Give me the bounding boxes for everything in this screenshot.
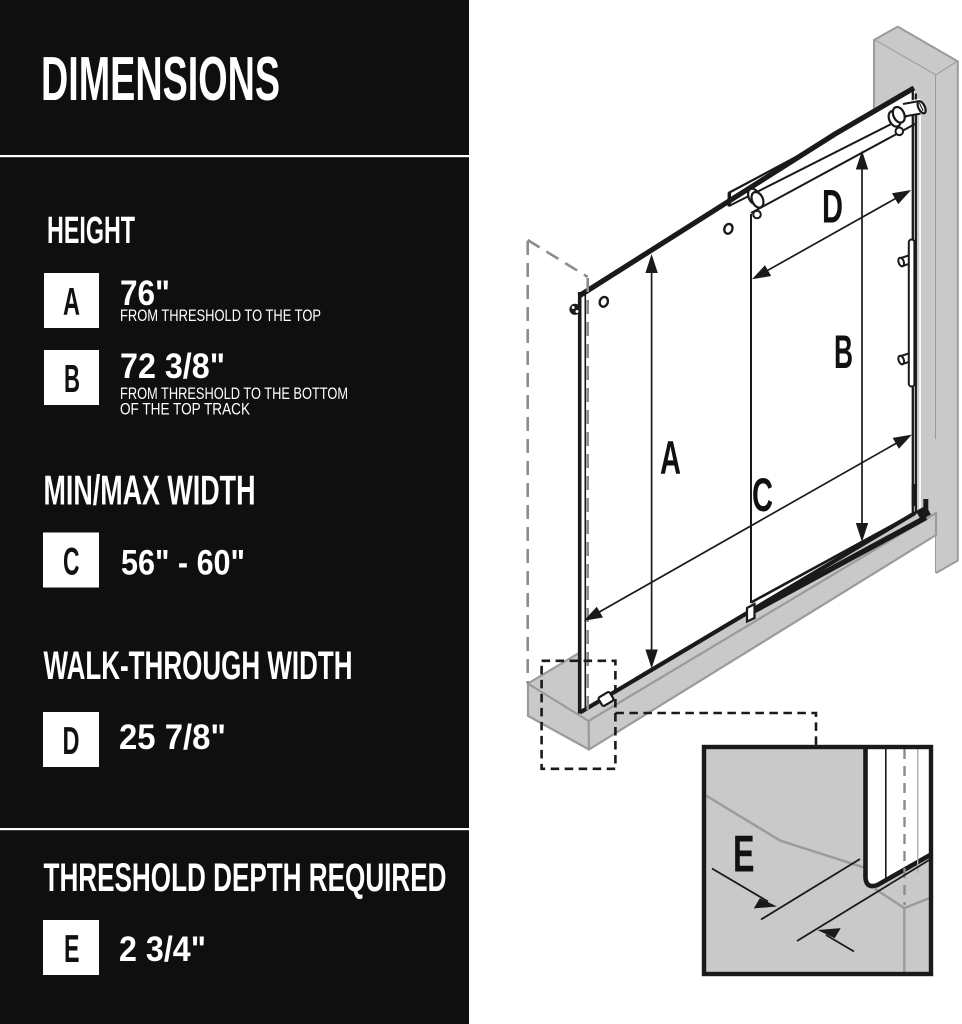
svg-text:MIN/MAX WIDTH: MIN/MAX WIDTH xyxy=(44,467,256,514)
svg-text:56" - 60": 56" - 60" xyxy=(121,544,245,583)
svg-text:E: E xyxy=(64,928,80,971)
svg-text:25 7/8": 25 7/8" xyxy=(119,718,226,757)
svg-text:B: B xyxy=(834,325,853,378)
svg-text:WALK-THROUGH WIDTH: WALK-THROUGH WIDTH xyxy=(44,644,353,688)
svg-text:72 3/8": 72 3/8" xyxy=(120,347,225,386)
svg-text:HEIGHT: HEIGHT xyxy=(47,210,135,252)
svg-text:A: A xyxy=(660,431,681,484)
svg-text:D: D xyxy=(63,720,80,763)
svg-text:C: C xyxy=(752,468,773,521)
svg-text:THRESHOLD DEPTH REQUIRED: THRESHOLD DEPTH REQUIRED xyxy=(44,856,447,900)
svg-text:A: A xyxy=(63,281,80,324)
svg-text:C: C xyxy=(63,541,80,584)
svg-text:DIMENSIONS: DIMENSIONS xyxy=(41,45,280,114)
svg-text:FROM THRESHOLD TO THE TOP: FROM THRESHOLD TO THE TOP xyxy=(120,307,321,325)
svg-text:E: E xyxy=(733,826,755,884)
svg-text:OF THE TOP TRACK: OF THE TOP TRACK xyxy=(120,401,250,419)
svg-text:B: B xyxy=(64,358,80,401)
svg-text:2 3/4": 2 3/4" xyxy=(119,930,206,969)
svg-text:D: D xyxy=(822,180,843,233)
